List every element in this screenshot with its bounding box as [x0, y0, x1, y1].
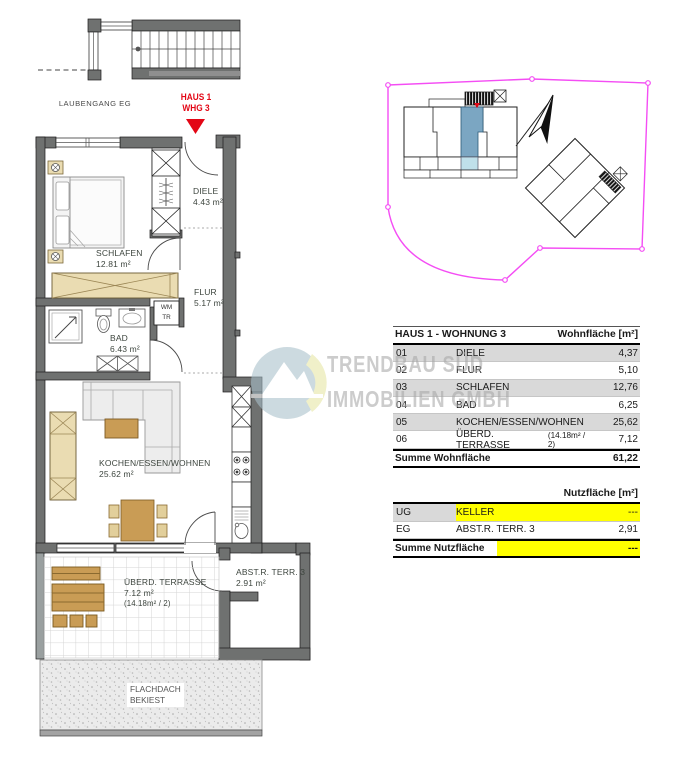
- north-arrow-icon: [516, 95, 553, 146]
- table-row: 04 BAD 6,25: [393, 397, 640, 414]
- wohnflaeche-sum-row: Summe Wohnfläche 61,22: [393, 449, 640, 468]
- highlighted-terrace-whg3: [461, 157, 478, 170]
- unit-marker-arrow: [186, 119, 205, 134]
- wohnflaeche-table-header: HAUS 1 - WOHNUNG 3 Wohnfläche [m²]: [393, 326, 640, 345]
- unit-marker-line2: WHG 3: [182, 103, 209, 113]
- room-label-bad: BAD 6.43 m²: [110, 333, 140, 355]
- exterior-stair: [88, 19, 240, 80]
- room-cell-with-note: ÜBERD. TERRASSE (14.18m² / 2): [456, 431, 592, 447]
- toilet: [96, 309, 111, 333]
- nutzflaeche-sum-row: Summe Nutzfläche ---: [393, 539, 640, 558]
- coffee-table: [105, 419, 138, 438]
- kitchen-line: [232, 386, 251, 543]
- room-label-wohnen: KOCHEN/ESSEN/WOHNEN 25.62 m²: [99, 458, 210, 480]
- room-label-abstellraum: ABST.R. TERR. 3 2.91 m²: [236, 567, 305, 589]
- building-haus2: [526, 130, 633, 237]
- table-row: 03 SCHLAFEN 12,76: [393, 380, 640, 397]
- room-label-flachdach: FLACHDACH BEKIEST: [127, 683, 184, 707]
- table-row: 02 FLUR 5,10: [393, 362, 640, 379]
- corridor-label: LAUBENGANG EG: [56, 99, 134, 108]
- table-row: 06 ÜBERD. TERRASSE (14.18m² / 2) 7,12: [393, 431, 640, 448]
- terrace-furniture: [52, 567, 104, 627]
- table-row: UG KELLER ---: [393, 504, 640, 522]
- table-title: HAUS 1 - WOHNUNG 3: [395, 329, 506, 340]
- table-unit-header: Nutzfläche [m²]: [564, 488, 638, 499]
- bath-vanity: [97, 356, 138, 371]
- siteplan: [386, 77, 651, 283]
- floorplan-page: LAUBENGANG EG HAUS 1 WHG 3 DIELE 4.43 m²…: [0, 0, 691, 757]
- nutzflaeche-table-header: Nutzfläche [m²]: [393, 486, 640, 504]
- unit-marker-label: HAUS 1 WHG 3: [176, 92, 216, 114]
- diele-wardrobe: [152, 148, 180, 236]
- built-in-closet: [52, 273, 178, 298]
- unit-marker-line1: HAUS 1: [181, 92, 211, 102]
- sink: [119, 308, 145, 327]
- nutzflaeche-table: Nutzfläche [m²] UG KELLER --- EG ABST.R.…: [393, 486, 640, 558]
- sideboard: [50, 412, 76, 500]
- washer-dryer-label: WM TR: [154, 303, 179, 323]
- table-row: EG ABST.R. TERR. 3 2,91: [393, 522, 640, 540]
- shower: [49, 310, 82, 343]
- dining-set: [109, 500, 167, 541]
- table-row: 01 DIELE 4,37: [393, 345, 640, 362]
- room-label-diele: DIELE 4.43 m²: [193, 186, 223, 208]
- bed: [53, 177, 124, 248]
- wohnflaeche-table: HAUS 1 - WOHNUNG 3 Wohnfläche [m²] 01 DI…: [393, 326, 640, 468]
- building-haus1: [404, 90, 517, 178]
- room-label-schlafen: SCHLAFEN 12.81 m²: [96, 248, 143, 270]
- room-label-flur: FLUR 5.17 m²: [194, 287, 224, 309]
- room-label-terrasse: ÜBERD. TERRASSE 7.12 m² (14.18m² / 2): [124, 577, 206, 609]
- table-unit-header: Wohnfläche [m²]: [558, 329, 638, 340]
